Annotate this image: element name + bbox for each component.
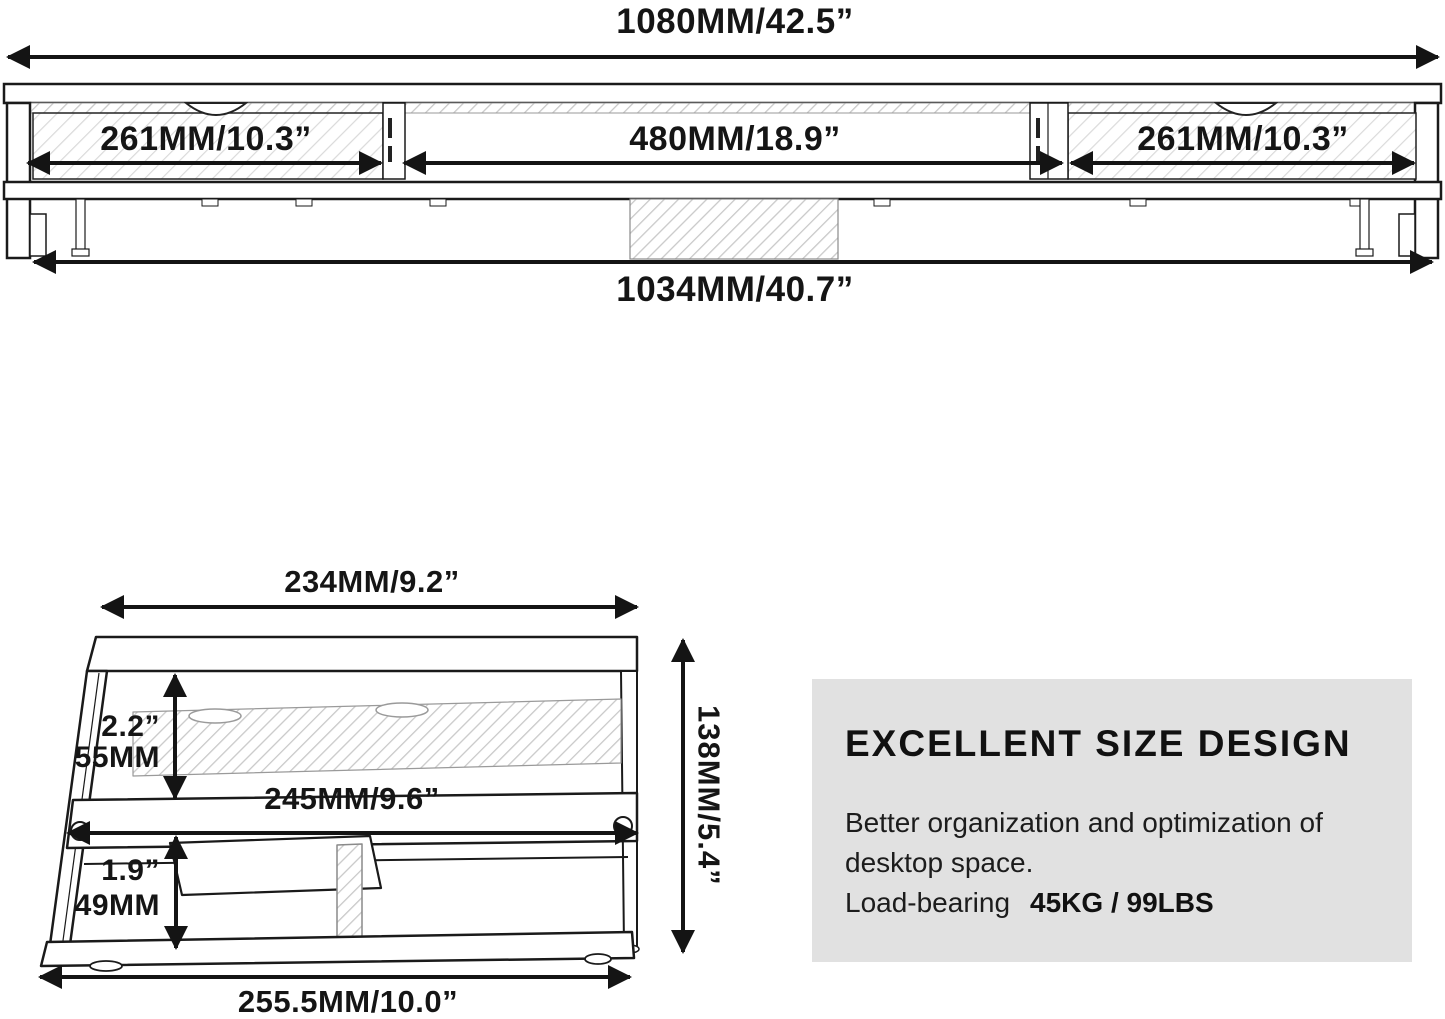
- info-panel-line1: Better organization and optimization of: [845, 803, 1382, 843]
- front-right-section-arrow: [1071, 161, 1414, 165]
- info-panel-load-line: Load-bearing45KG / 99LBS: [845, 883, 1382, 923]
- side-height-arrow: [681, 640, 685, 952]
- product-dimension-sheet: 1080MM/42.5” 261MM/10.3” 480MM/18.9” 261…: [0, 0, 1445, 1019]
- side-upper-gap-mm-label: 55MM: [60, 742, 160, 774]
- front-right-section-label: 261MM/10.3”: [1068, 122, 1418, 158]
- side-lower-gap-mm-label: 49MM: [60, 890, 160, 922]
- load-bearing-label: Load-bearing: [845, 887, 1010, 918]
- side-base-depth-arrow: [40, 975, 630, 979]
- front-view-drawing: [4, 84, 1441, 259]
- side-height-label: 138MM/5.4”: [692, 645, 725, 945]
- front-total-width-label: 1080MM/42.5”: [485, 4, 985, 41]
- front-left-section-arrow: [28, 161, 381, 165]
- side-upper-gap-arrow: [173, 675, 177, 798]
- front-middle-section-arrow: [404, 161, 1062, 165]
- side-top-depth-arrow: [102, 605, 637, 609]
- side-upper-gap-inch-label: 2.2”: [60, 711, 160, 743]
- side-top-depth-label: 234MM/9.2”: [222, 566, 522, 599]
- side-lower-gap-inch-label: 1.9”: [60, 855, 160, 887]
- front-base-width-arrow: [34, 260, 1432, 264]
- side-lower-gap-arrow: [174, 837, 178, 948]
- front-left-section-label: 261MM/10.3”: [31, 122, 381, 158]
- info-panel: EXCELLENT SIZE DESIGN Better organizatio…: [812, 679, 1412, 962]
- side-shelf-depth-arrow: [68, 831, 637, 835]
- front-total-width-arrow: [8, 55, 1438, 59]
- front-base-width-label: 1034MM/40.7”: [485, 272, 985, 309]
- front-middle-section-label: 480MM/18.9”: [485, 122, 985, 158]
- info-panel-line2: desktop space.: [845, 843, 1382, 883]
- info-panel-title: EXCELLENT SIZE DESIGN: [845, 723, 1382, 765]
- side-shelf-depth-label: 245MM/9.6”: [202, 783, 502, 816]
- load-bearing-value: 45KG / 99LBS: [1030, 887, 1214, 918]
- side-base-depth-label: 255.5MM/10.0”: [198, 986, 498, 1019]
